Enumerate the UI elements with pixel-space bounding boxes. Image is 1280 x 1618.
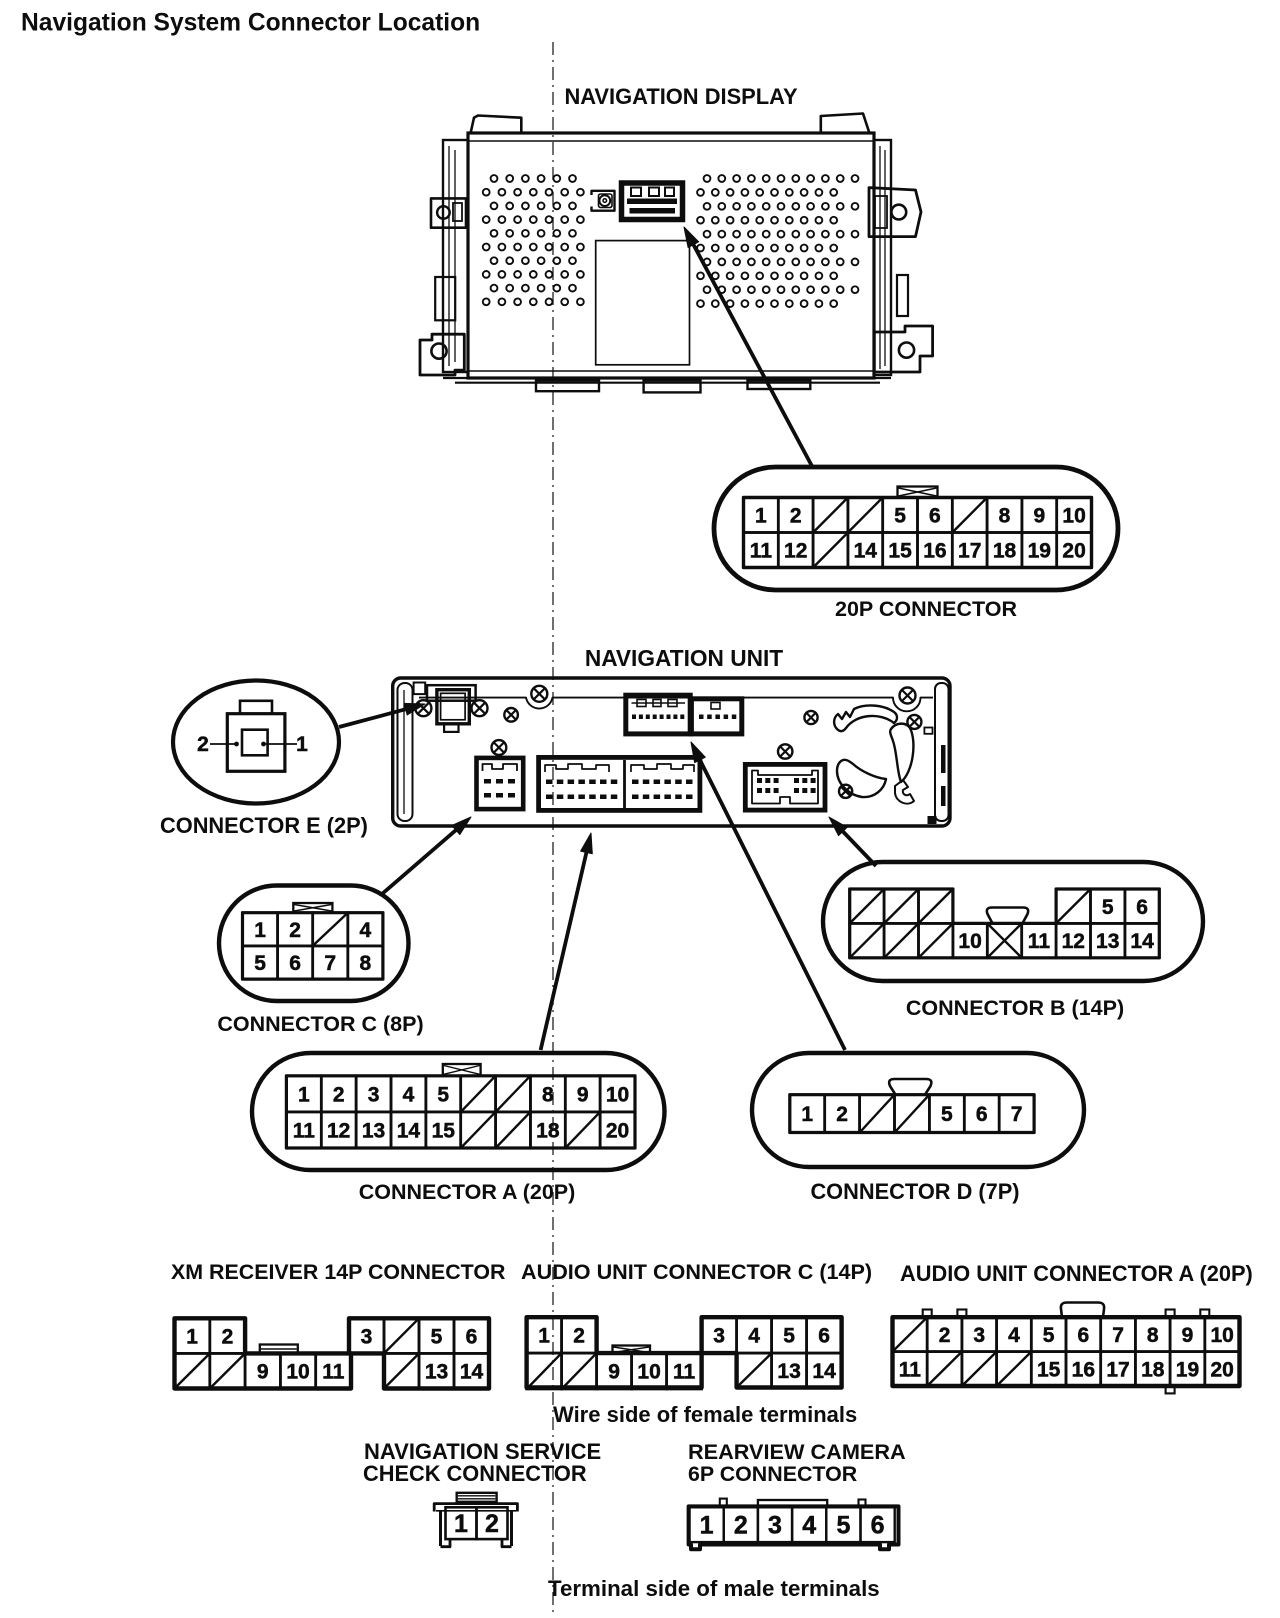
svg-text:CONNECTOR B (14P): CONNECTOR B (14P) [906,996,1124,1020]
svg-text:REARVIEW CAMERA: REARVIEW CAMERA [688,1439,906,1464]
svg-text:2: 2 [790,505,802,528]
svg-text:CHECK CONNECTOR: CHECK CONNECTOR [363,1461,587,1486]
svg-text:18: 18 [536,1120,560,1143]
svg-text:7: 7 [1112,1324,1124,1347]
svg-text:5: 5 [783,1325,795,1348]
svg-text:3: 3 [361,1325,373,1348]
svg-text:20: 20 [606,1120,629,1143]
svg-text:2: 2 [485,1510,499,1538]
svg-text:AUDIO UNIT CONNECTOR C (14P): AUDIO UNIT CONNECTOR C (14P) [521,1259,872,1284]
svg-text:13: 13 [777,1360,800,1383]
svg-text:4: 4 [748,1325,760,1348]
svg-text:12: 12 [327,1120,350,1143]
svg-text:9: 9 [577,1083,589,1106]
svg-text:1: 1 [700,1512,714,1540]
svg-text:5: 5 [437,1083,449,1106]
svg-text:6: 6 [976,1103,988,1126]
svg-text:1: 1 [454,1510,468,1538]
svg-text:6: 6 [289,952,301,975]
svg-text:6P CONNECTOR: 6P CONNECTOR [688,1462,858,1486]
svg-text:14: 14 [854,540,878,563]
svg-text:2: 2 [939,1324,951,1347]
svg-text:17: 17 [1106,1358,1129,1381]
svg-text:11: 11 [673,1361,696,1384]
svg-text:5: 5 [431,1325,443,1348]
svg-text:AUDIO UNIT CONNECTOR A (20P): AUDIO UNIT CONNECTOR A (20P) [900,1261,1253,1286]
svg-text:4: 4 [802,1512,816,1540]
svg-text:2: 2 [289,919,301,942]
svg-text:CONNECTOR A (20P): CONNECTOR A (20P) [359,1180,576,1204]
svg-text:7: 7 [1011,1103,1023,1126]
svg-text:1: 1 [538,1325,550,1348]
svg-text:14: 14 [812,1360,836,1383]
svg-text:10: 10 [286,1361,309,1384]
svg-text:4: 4 [1008,1324,1020,1347]
svg-text:14: 14 [460,1361,484,1384]
svg-text:17: 17 [958,540,981,563]
svg-text:11: 11 [322,1361,345,1384]
svg-text:CONNECTOR C (8P): CONNECTOR C (8P) [217,1012,423,1036]
svg-text:XM RECEIVER 14P CONNECTOR: XM RECEIVER 14P CONNECTOR [171,1260,506,1284]
svg-text:13: 13 [425,1361,448,1384]
svg-text:6: 6 [1136,896,1148,919]
svg-text:14: 14 [397,1120,421,1143]
svg-text:2: 2 [573,1325,585,1348]
svg-text:18: 18 [993,540,1017,563]
svg-text:6: 6 [871,1512,885,1540]
svg-text:1: 1 [186,1325,198,1348]
svg-text:CONNECTOR D (7P): CONNECTOR D (7P) [810,1179,1019,1204]
svg-text:3: 3 [973,1324,985,1347]
svg-text:5: 5 [941,1103,953,1126]
svg-text:15: 15 [888,540,912,563]
svg-text:13: 13 [362,1120,385,1143]
svg-text:14: 14 [1130,930,1154,953]
svg-text:2: 2 [222,1325,234,1348]
svg-text:Terminal side of male terminal: Terminal side of male terminals [548,1576,880,1601]
svg-text:CONNECTOR E (2P): CONNECTOR E (2P) [160,813,368,838]
svg-text:1: 1 [296,733,308,756]
svg-text:9: 9 [257,1361,269,1384]
svg-text:1: 1 [801,1103,813,1126]
svg-text:12: 12 [784,540,807,563]
svg-text:11: 11 [899,1358,922,1381]
svg-text:8: 8 [999,505,1011,528]
svg-text:20P CONNECTOR: 20P CONNECTOR [835,597,1017,621]
svg-text:NAVIGATION DISPLAY: NAVIGATION DISPLAY [564,84,798,109]
svg-text:NAVIGATION UNIT: NAVIGATION UNIT [585,645,783,671]
svg-text:1: 1 [254,919,266,942]
svg-text:2: 2 [836,1103,848,1126]
svg-text:8: 8 [1147,1324,1159,1347]
svg-text:1: 1 [298,1083,310,1106]
svg-text:16: 16 [1072,1358,1095,1381]
svg-text:9: 9 [1033,505,1045,528]
svg-text:6: 6 [929,505,941,528]
svg-text:20: 20 [1210,1358,1233,1381]
svg-text:6: 6 [1078,1324,1090,1347]
svg-text:5: 5 [894,505,906,528]
svg-text:11: 11 [1028,930,1051,953]
svg-text:10: 10 [1062,505,1085,528]
svg-text:20: 20 [1062,540,1085,563]
svg-text:10: 10 [637,1361,660,1384]
svg-text:Wire side of female terminals: Wire side of female terminals [553,1402,857,1427]
svg-text:5: 5 [1043,1324,1055,1347]
svg-text:Navigation System Connector Lo: Navigation System Connector Location [21,10,480,37]
svg-text:5: 5 [836,1512,850,1540]
svg-text:2: 2 [734,1512,748,1540]
svg-text:8: 8 [542,1083,554,1106]
svg-text:9: 9 [1182,1324,1194,1347]
svg-text:13: 13 [1096,930,1119,953]
svg-text:15: 15 [432,1120,456,1143]
svg-text:19: 19 [1176,1358,1199,1381]
svg-text:2: 2 [333,1083,345,1106]
svg-text:1: 1 [755,505,767,528]
svg-text:10: 10 [606,1083,629,1106]
svg-text:9: 9 [608,1361,620,1384]
svg-text:10: 10 [1210,1324,1233,1347]
svg-text:12: 12 [1062,930,1085,953]
svg-text:15: 15 [1037,1358,1061,1381]
svg-text:7: 7 [324,952,336,975]
svg-text:10: 10 [958,930,981,953]
svg-text:19: 19 [1028,540,1051,563]
svg-text:11: 11 [293,1120,316,1143]
svg-text:3: 3 [713,1325,725,1348]
svg-text:6: 6 [818,1325,830,1348]
svg-text:5: 5 [1102,896,1114,919]
svg-text:4: 4 [360,919,372,942]
svg-text:5: 5 [254,952,266,975]
svg-text:16: 16 [923,540,946,563]
svg-text:2: 2 [197,733,209,756]
svg-text:18: 18 [1141,1358,1165,1381]
svg-text:3: 3 [368,1083,380,1106]
svg-text:11: 11 [750,540,773,563]
svg-text:4: 4 [403,1083,415,1106]
svg-text:8: 8 [360,952,372,975]
svg-text:3: 3 [768,1512,782,1540]
svg-text:6: 6 [466,1325,478,1348]
